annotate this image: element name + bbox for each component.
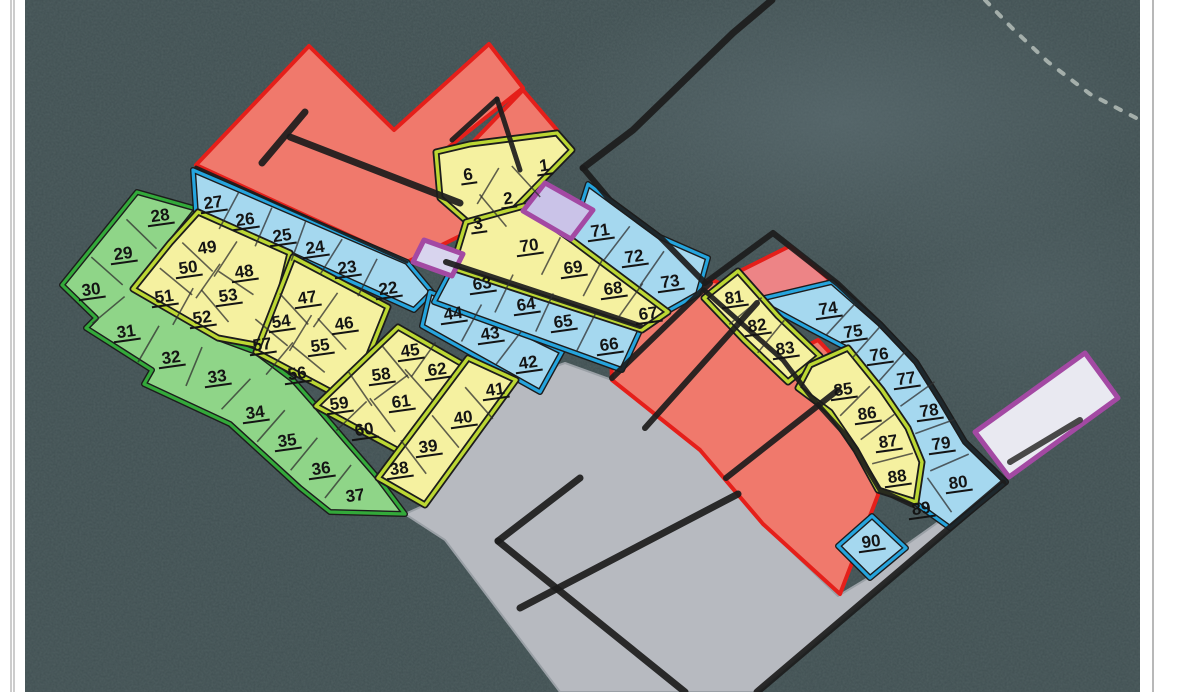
plot-number-37: 37: [344, 485, 365, 506]
plot-number-49: 49: [196, 237, 217, 258]
left-margin: [0, 0, 25, 692]
subdivision-map-svg: 1236222324252627282930313233343536373839…: [0, 0, 1179, 692]
plot-label-49: 49: [196, 237, 217, 258]
subdivision-map-page: 1236222324252627282930313233343536373839…: [0, 0, 1179, 692]
plot-label-37: 37: [344, 485, 365, 506]
right-margin: [1140, 0, 1179, 692]
